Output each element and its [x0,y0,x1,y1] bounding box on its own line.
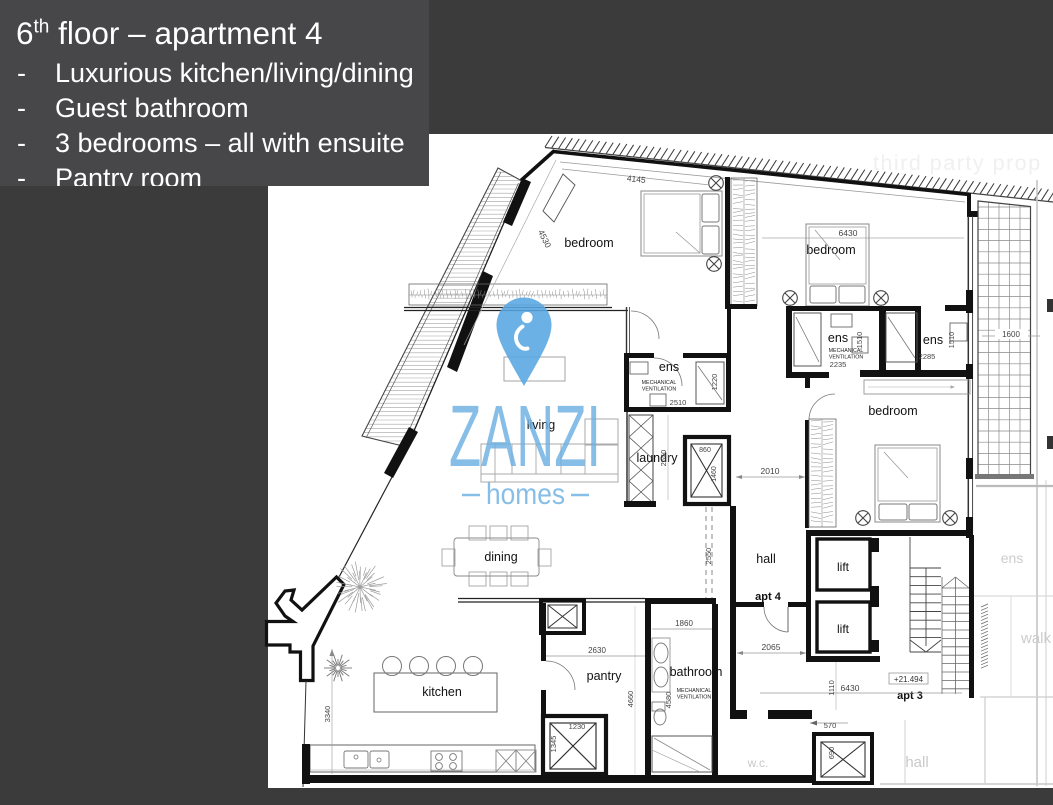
svg-text:4580: 4580 [664,692,673,709]
svg-text:bedroom: bedroom [806,243,855,257]
svg-text:+21.494: +21.494 [894,675,924,684]
svg-text:2235: 2235 [830,360,847,369]
svg-text:570: 570 [824,721,837,730]
svg-text:bathroom: bathroom [670,665,723,679]
svg-text:lift: lift [837,622,850,636]
svg-text:2510: 2510 [670,398,687,407]
svg-text:1460: 1460 [711,466,718,482]
svg-text:ZANZI: ZANZI [449,388,601,485]
svg-text:3340: 3340 [323,706,332,723]
svg-text:VENTILATION: VENTILATION [642,387,677,393]
svg-text:ens: ens [828,331,848,345]
svg-text:VENTILATION: VENTILATION [677,695,712,701]
svg-text:ens: ens [659,360,679,374]
svg-text:1220: 1220 [710,374,719,391]
svg-text:6430: 6430 [839,228,858,238]
svg-text:2550: 2550 [704,548,713,565]
svg-text:1230: 1230 [569,722,586,731]
svg-text:bedroom: bedroom [868,404,917,418]
svg-text:laundry: laundry [637,451,679,465]
svg-text:walk: walk [1020,630,1052,647]
svg-text:4660: 4660 [626,691,635,708]
svg-text:kitchen: kitchen [422,685,462,699]
svg-text:1345: 1345 [549,736,558,753]
svg-text:ens: ens [923,333,943,347]
svg-text:hall: hall [756,552,775,566]
svg-text:pantry: pantry [587,669,622,683]
svg-text:4145: 4145 [626,173,646,185]
svg-text:2065: 2065 [762,642,781,652]
svg-text:dining: dining [484,550,517,564]
svg-text:6430: 6430 [841,683,860,693]
svg-text:lift: lift [837,560,850,574]
svg-text:2630: 2630 [588,646,606,655]
svg-text:ens: ens [1001,550,1024,566]
svg-text:1510: 1510 [947,332,956,349]
svg-text:MECHANICAL: MECHANICAL [677,688,712,694]
svg-text:homes: homes [486,478,565,511]
svg-text:2285: 2285 [919,352,936,361]
svg-text:860: 860 [699,447,711,454]
svg-text:w.c.: w.c. [747,756,769,770]
svg-text:1110: 1110 [827,680,836,696]
svg-text:MECHANICAL: MECHANICAL [642,380,677,386]
svg-text:2010: 2010 [761,466,780,476]
svg-text:1600: 1600 [1002,330,1020,339]
svg-text:third party prop: third party prop [873,151,1042,175]
svg-text:1860: 1860 [675,619,693,628]
svg-text:apt 3: apt 3 [897,690,923,702]
svg-text:hall: hall [905,754,928,771]
svg-text:apt 4: apt 4 [755,591,782,603]
svg-text:1510: 1510 [855,332,864,349]
svg-text:bedroom: bedroom [564,236,613,250]
svg-text:2550: 2550 [659,450,668,467]
